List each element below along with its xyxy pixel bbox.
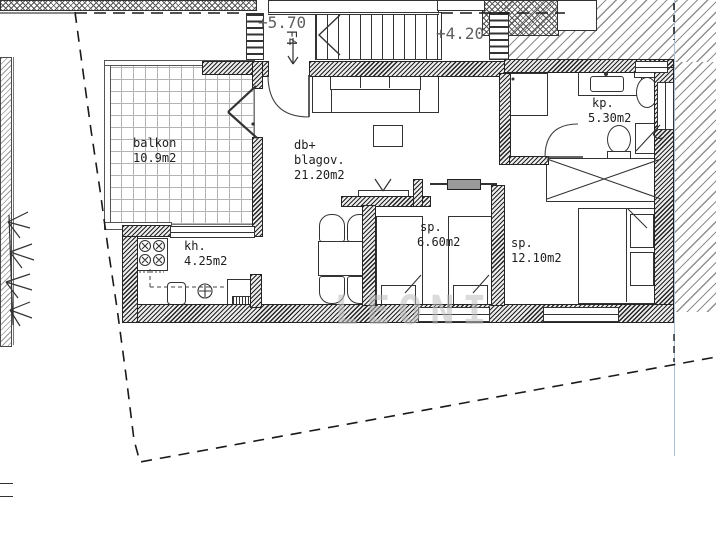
washing-machine xyxy=(508,73,548,116)
watermark: LEONI xyxy=(334,288,494,334)
living-area: 21.20m2 xyxy=(294,168,345,183)
bedroom-small-name: sp. xyxy=(420,220,460,235)
corner-mark-2 xyxy=(0,496,13,497)
sofa-arm-right xyxy=(419,74,439,113)
kitchen-label: kh. 4.25m2 xyxy=(184,239,227,269)
pillow-2 xyxy=(630,252,654,286)
kitchen-area: 4.25m2 xyxy=(184,254,227,269)
section-line xyxy=(674,0,675,456)
sofa-cushion-line-1 xyxy=(360,74,361,88)
balcony-door-wall-bottom xyxy=(253,138,262,236)
living-label: db+ blagov. 21.20m2 xyxy=(294,138,345,183)
neighbour-wall-line xyxy=(13,57,14,345)
balcony-rail-left xyxy=(104,60,111,230)
right-wall-window xyxy=(657,82,674,130)
sliding-door-panel xyxy=(447,179,481,190)
bathroom-left-wall xyxy=(500,74,510,164)
balcony-door-wall-top xyxy=(253,62,262,88)
bedroom-large-label: sp. 12.10m2 xyxy=(511,236,562,266)
corner-mark-1 xyxy=(0,483,13,484)
kitchen-window xyxy=(170,226,255,238)
kitchen-counter-dashed xyxy=(150,269,227,287)
living-top-wall xyxy=(310,62,505,76)
roof-hatch-right xyxy=(673,62,716,312)
bathroom-door-swing xyxy=(545,124,578,157)
bedroom-small-label: sp. 6.60m2 xyxy=(420,220,460,250)
top-wall-band xyxy=(0,0,257,11)
bathroom-label: kp. 5.30m2 xyxy=(588,96,631,126)
stair-rail-right xyxy=(489,12,509,60)
living-name-2: blagov. xyxy=(294,153,345,168)
partition-stub xyxy=(414,180,422,206)
bidet-bowl xyxy=(607,125,631,154)
bedroom-large-name: sp. xyxy=(511,236,562,251)
upper-white-block xyxy=(557,0,597,31)
balcony-label: balkon 10.9m2 xyxy=(133,136,176,166)
living-top-wall-stub xyxy=(262,62,268,76)
sofa-cushion-line-2 xyxy=(389,74,390,88)
balcony-tile-floor xyxy=(108,63,255,225)
bedroom-small-area: 6.60m2 xyxy=(417,235,460,250)
balcony-name: balkon xyxy=(133,136,176,151)
bottom-window-2 xyxy=(543,307,619,322)
kitchen-left-wall xyxy=(123,226,137,322)
bathroom-window xyxy=(635,61,668,73)
bathroom-bottom-wall xyxy=(510,157,548,164)
stair-flight-ref: F4 xyxy=(283,30,298,46)
floor-plan: +5.70 +4.20 F4 balkon 10.9m2 db+ blagov.… xyxy=(0,0,716,549)
sofa-arm-left xyxy=(312,74,332,113)
kitchen-sink xyxy=(167,282,186,305)
wardrobe xyxy=(546,158,664,202)
balcony-area: 10.9m2 xyxy=(133,151,176,166)
neighbour-wall xyxy=(0,57,12,347)
pillow-1 xyxy=(630,214,654,248)
entrance-door-swing xyxy=(268,75,309,117)
staircase xyxy=(315,12,442,60)
kitchen-name: kh. xyxy=(184,239,227,254)
lower-level-mark: +4.20 xyxy=(436,24,484,43)
bathroom-area: 5.30m2 xyxy=(588,111,631,126)
double-bed-head-line xyxy=(626,208,627,302)
chair-top-left xyxy=(319,214,345,242)
sofa-back xyxy=(330,74,421,90)
sink-basin xyxy=(590,76,624,92)
stove xyxy=(137,238,168,271)
living-name-1: db+ xyxy=(294,138,345,153)
kitchen-round-fixture xyxy=(198,284,212,298)
coffee-table xyxy=(373,125,403,147)
kitchen-top-wall xyxy=(123,226,170,236)
kitchen-living-stub xyxy=(251,275,261,307)
bathroom-name: kp. xyxy=(592,96,631,111)
bedroom-large-area: 12.10m2 xyxy=(511,251,562,266)
landing-extension xyxy=(437,0,485,11)
